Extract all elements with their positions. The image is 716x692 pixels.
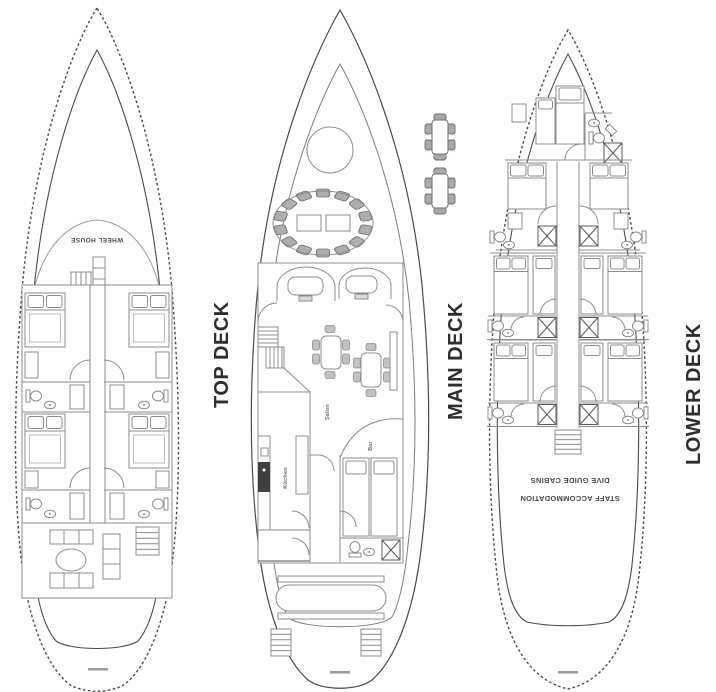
deck-plans-drawing: WHEEL HOUSE — [0, 0, 716, 692]
stern-sunpad — [276, 576, 386, 619]
stove — [258, 462, 270, 492]
foredeck-circle — [307, 127, 353, 173]
main-deck-plan: Kitchen Salon Bar — [251, 10, 428, 688]
lower-deck-plan: STAFF ACCOMMODATION DIVE GUIDE CABINS — [487, 30, 649, 689]
stern-platform-mark — [330, 671, 350, 674]
staff-accommodation-line: STAFF ACCOMMODATION — [520, 494, 620, 503]
wheelhouse-locker — [93, 257, 105, 289]
lower-deck-label: LOWER DECK — [683, 323, 705, 465]
top-deck-plan: WHEEL HOUSE — [16, 8, 179, 691]
salon-label: Salon — [325, 404, 331, 420]
sofa — [50, 530, 93, 544]
main-deck-label: MAIN DECK — [445, 302, 467, 420]
wheel-house-label: WHEEL HOUSE — [70, 236, 123, 243]
salon-table — [56, 549, 86, 571]
bar-label: Bar — [368, 440, 374, 450]
side-shelf — [390, 332, 397, 390]
stern-platform-mark — [88, 668, 108, 671]
sofa — [50, 573, 93, 588]
yacht-deck-plans-page: WHEEL HOUSE — [0, 0, 716, 692]
top-deck-label: TOP DECK — [211, 301, 233, 408]
shelf-unit — [103, 534, 120, 579]
deck-table-icon — [425, 114, 455, 160]
deck-table-icon — [425, 168, 455, 214]
dive-guide-cabins-line: DIVE GUIDE CABINS — [530, 476, 609, 485]
stairs — [136, 527, 159, 555]
stern-ladder — [271, 629, 291, 656]
stern-ladder — [361, 629, 381, 656]
kitchen-label: Kitchen — [283, 467, 289, 489]
stern-platform-mark — [558, 671, 578, 674]
stairs — [555, 430, 581, 454]
